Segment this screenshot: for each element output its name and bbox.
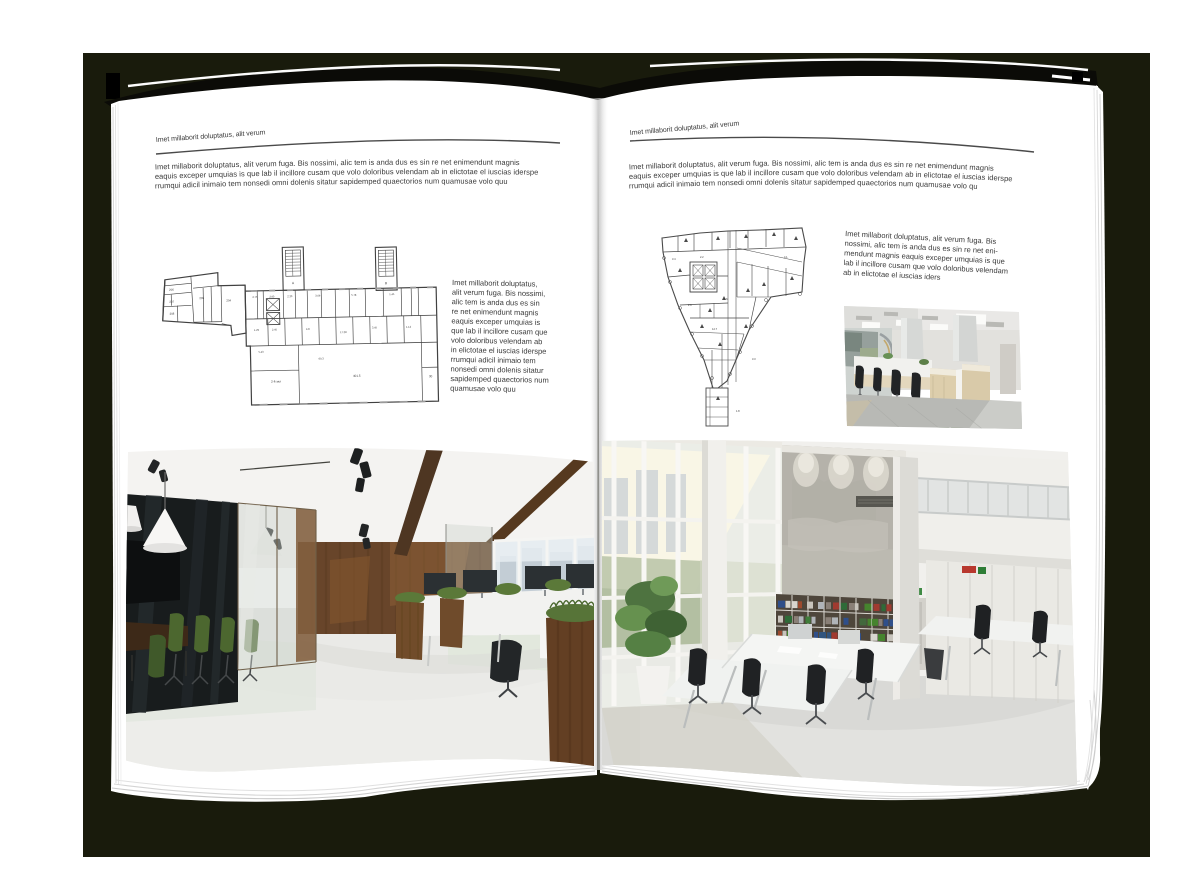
svg-text:206: 206 xyxy=(169,288,174,292)
svg-text:208: 208 xyxy=(170,312,175,316)
svg-text:1.8: 1.8 xyxy=(736,409,740,413)
svg-text:1.29: 1.29 xyxy=(254,328,260,332)
svg-text:4.1: 4.1 xyxy=(784,255,788,259)
svg-text:2.90: 2.90 xyxy=(269,295,275,299)
svg-text:60.3: 60.3 xyxy=(319,356,325,360)
svg-text:12.7: 12.7 xyxy=(712,327,718,331)
svg-text:quamusae volo quu: quamusae volo quu xyxy=(450,384,516,394)
svg-text:2.9: 2.9 xyxy=(688,303,692,307)
svg-text:5.43: 5.43 xyxy=(258,350,264,354)
svg-text:207: 207 xyxy=(169,300,174,304)
svg-text:2.45: 2.45 xyxy=(272,327,278,331)
svg-text:3.45: 3.45 xyxy=(372,325,378,329)
svg-text:2.2: 2.2 xyxy=(700,255,704,259)
svg-text:B: B xyxy=(385,281,387,285)
svg-text:4.8: 4.8 xyxy=(306,327,310,331)
svg-text:5.6: 5.6 xyxy=(724,297,728,301)
svg-text:5.78: 5.78 xyxy=(351,293,357,297)
svg-text:205: 205 xyxy=(199,296,204,300)
svg-text:1.45: 1.45 xyxy=(389,292,395,296)
svg-text:30: 30 xyxy=(429,374,433,378)
svg-text:3.09: 3.09 xyxy=(315,294,321,298)
svg-text:2.30: 2.30 xyxy=(287,294,293,298)
svg-text:3.3: 3.3 xyxy=(752,357,756,361)
svg-text:204: 204 xyxy=(226,298,231,302)
svg-text:17.38: 17.38 xyxy=(340,330,347,334)
svg-text:3.4: 3.4 xyxy=(672,257,676,261)
svg-text:2.75: 2.75 xyxy=(252,295,258,299)
svg-text:401.5: 401.5 xyxy=(353,374,361,378)
svg-text:1.12: 1.12 xyxy=(406,325,412,329)
svg-text:2-й зал: 2-й зал xyxy=(271,379,281,383)
